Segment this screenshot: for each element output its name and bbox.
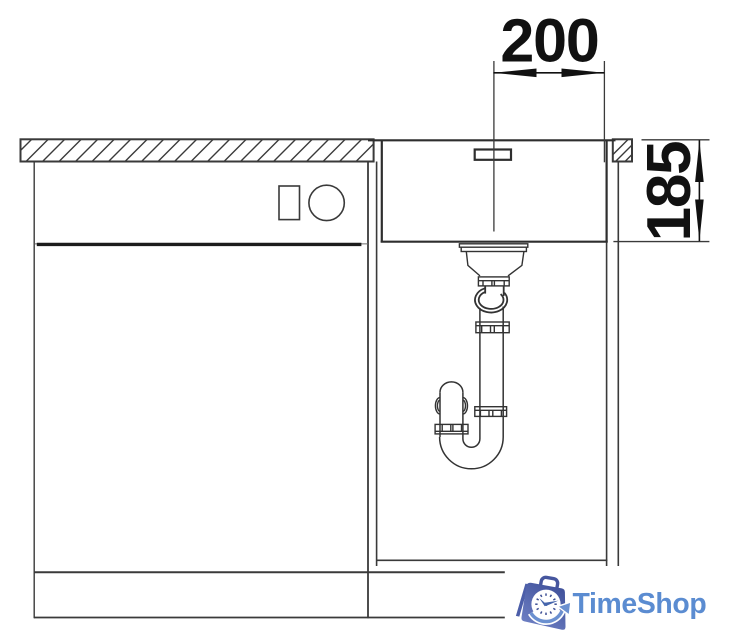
svg-text:185: 185 xyxy=(635,142,704,242)
svg-text:TimeShop: TimeShop xyxy=(573,588,707,620)
svg-text:200: 200 xyxy=(500,6,598,74)
